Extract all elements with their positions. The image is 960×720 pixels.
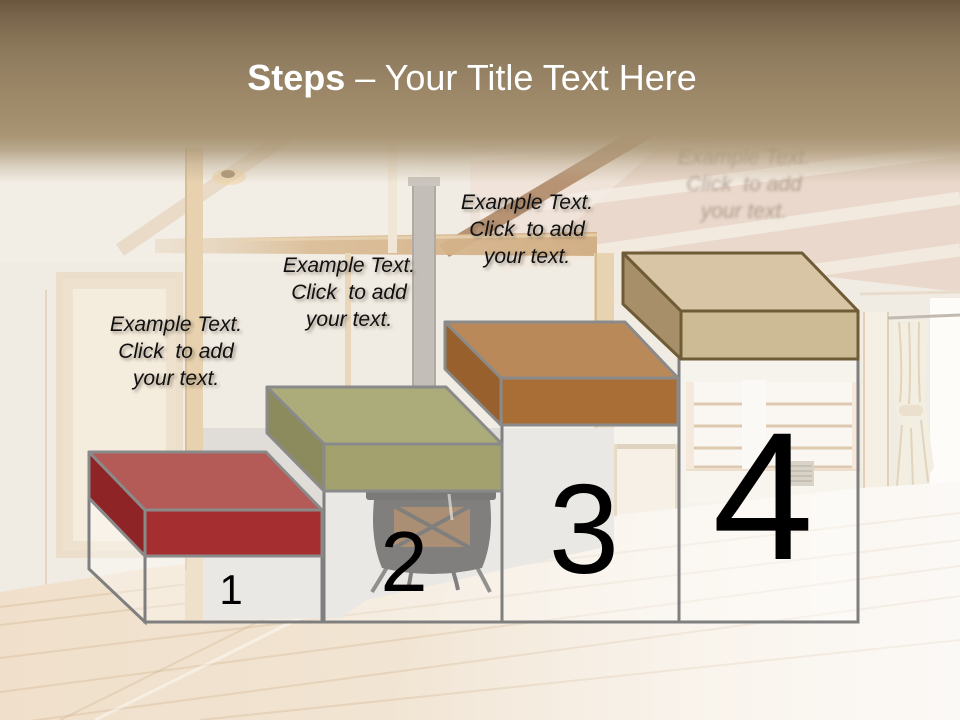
svg-text:2: 2	[380, 515, 427, 610]
svg-text:4: 4	[712, 394, 813, 598]
svg-text:3: 3	[549, 458, 620, 600]
svg-text:1: 1	[219, 566, 242, 613]
